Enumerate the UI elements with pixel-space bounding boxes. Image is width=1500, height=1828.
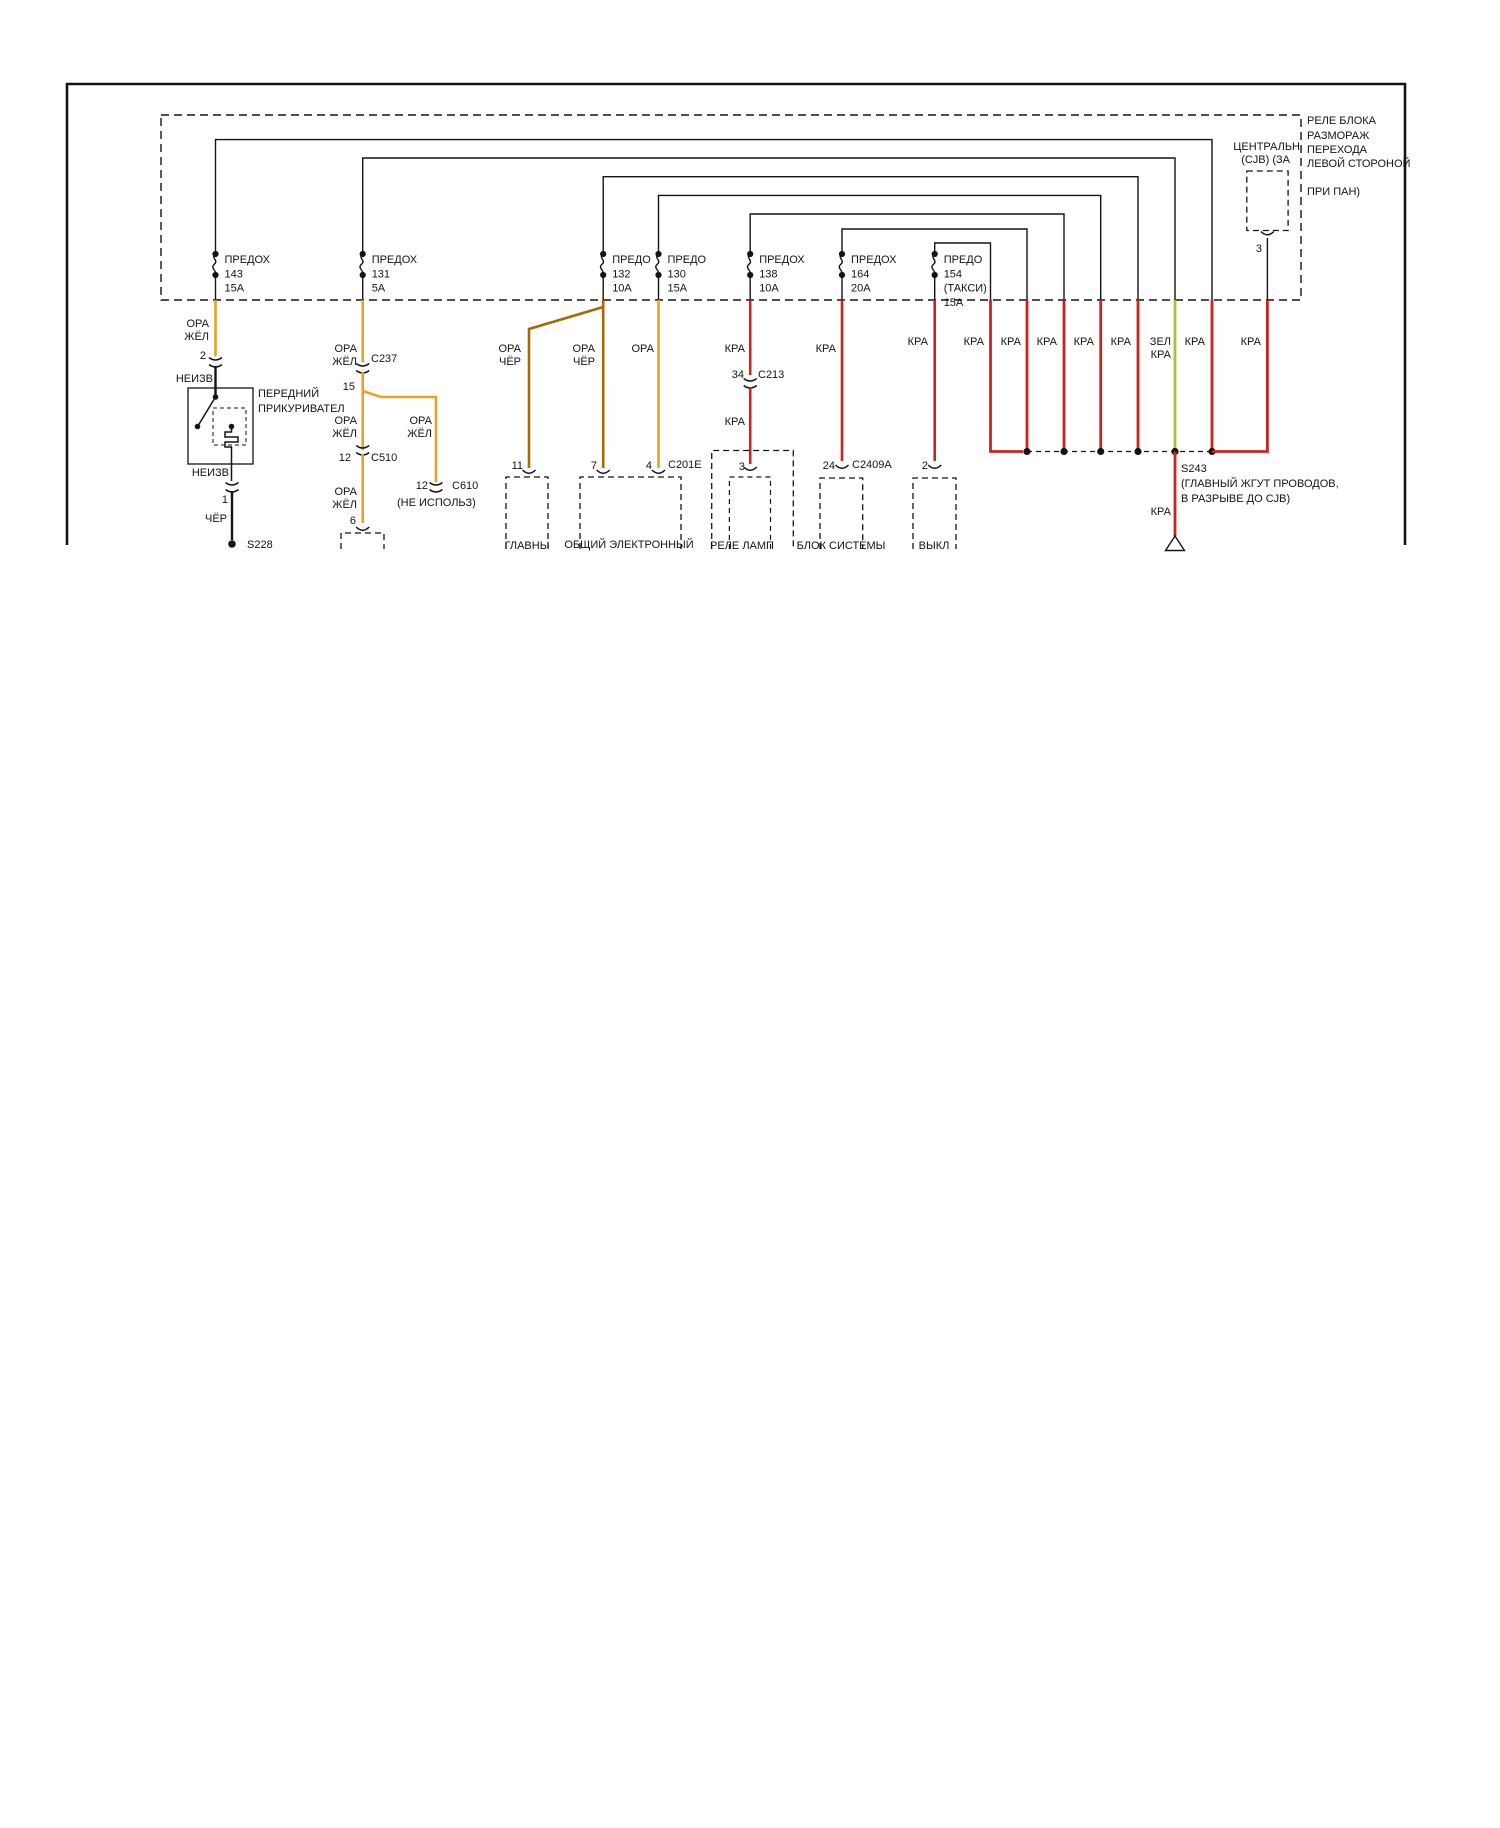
svg-text:ПРЕДО: ПРЕДО xyxy=(612,254,651,266)
svg-text:2: 2 xyxy=(922,460,928,472)
svg-text:(CJB) (ЗА: (CJB) (ЗА xyxy=(1241,154,1290,166)
svg-text:10А: 10А xyxy=(612,283,632,295)
svg-text:12: 12 xyxy=(339,452,351,464)
svg-text:ЖЁЛ: ЖЁЛ xyxy=(332,356,357,368)
svg-text:ПЕРЕДНИЙ: ПЕРЕДНИЙ xyxy=(258,387,319,400)
svg-text:НЕИЗВ: НЕИЗВ xyxy=(176,373,213,385)
svg-text:КРА: КРА xyxy=(908,336,929,348)
svg-text:3: 3 xyxy=(1256,243,1262,255)
svg-text:5А: 5А xyxy=(372,283,386,295)
svg-text:ЦЕНТРАЛЬН: ЦЕНТРАЛЬН xyxy=(1233,141,1300,153)
svg-text:S228: S228 xyxy=(247,539,273,551)
svg-text:КРА: КРА xyxy=(964,336,985,348)
svg-text:РЕЛЕ ЛАМП: РЕЛЕ ЛАМП xyxy=(710,540,774,552)
svg-text:ОРА: ОРА xyxy=(632,343,655,355)
svg-text:(ГЛАВНЫЙ ЖГУТ ПРОВОДОВ,: (ГЛАВНЫЙ ЖГУТ ПРОВОДОВ, xyxy=(1181,477,1339,490)
svg-text:154: 154 xyxy=(944,268,962,280)
svg-text:1: 1 xyxy=(222,494,228,506)
svg-text:132: 132 xyxy=(612,268,630,280)
svg-text:C2409A: C2409A xyxy=(852,459,892,471)
svg-text:4: 4 xyxy=(646,460,652,472)
svg-text:РАЗМОРАЖ: РАЗМОРАЖ xyxy=(1307,130,1369,142)
svg-text:6: 6 xyxy=(350,515,356,527)
svg-text:ПЕРЕХОДА: ПЕРЕХОДА xyxy=(1307,144,1368,156)
svg-text:130: 130 xyxy=(668,268,686,280)
svg-text:В РАЗРЫВЕ ДО CJB): В РАЗРЫВЕ ДО CJB) xyxy=(1181,493,1290,505)
svg-text:24: 24 xyxy=(823,460,835,472)
svg-text:2: 2 xyxy=(200,350,206,362)
svg-text:S243: S243 xyxy=(1181,463,1207,475)
svg-text:КРА: КРА xyxy=(1151,506,1172,518)
svg-text:10А: 10А xyxy=(759,283,779,295)
svg-text:РЕЛЕ БЛОКА: РЕЛЕ БЛОКА xyxy=(1307,115,1377,127)
svg-text:C201E: C201E xyxy=(668,459,702,471)
svg-text:БЛОК СИСТЕМЫ: БЛОК СИСТЕМЫ xyxy=(797,540,886,552)
svg-text:C610: C610 xyxy=(452,480,478,492)
svg-text:12: 12 xyxy=(416,480,428,492)
svg-text:ОРА: ОРА xyxy=(573,343,596,355)
svg-text:ПРИ ПАН): ПРИ ПАН) xyxy=(1307,186,1360,198)
svg-text:ОРА: ОРА xyxy=(335,343,358,355)
svg-text:ПРЕДО: ПРЕДО xyxy=(668,254,707,266)
svg-text:15А: 15А xyxy=(225,283,245,295)
svg-text:ЗЕЛ: ЗЕЛ xyxy=(1150,336,1171,348)
svg-text:КРА: КРА xyxy=(816,343,837,355)
svg-text:КРА: КРА xyxy=(1111,336,1132,348)
svg-text:131: 131 xyxy=(372,268,390,280)
svg-text:КРА: КРА xyxy=(1151,349,1172,361)
svg-text:ЧЁР: ЧЁР xyxy=(573,356,595,368)
svg-text:ЛЕВОЙ СТОРОНОЙ: ЛЕВОЙ СТОРОНОЙ xyxy=(1307,157,1410,170)
svg-text:(ТАКСИ): (ТАКСИ) xyxy=(944,283,987,295)
svg-text:ПРЕДОХ: ПРЕДОХ xyxy=(372,254,418,266)
svg-text:15: 15 xyxy=(343,381,355,393)
svg-text:ЖЁЛ: ЖЁЛ xyxy=(184,331,209,343)
svg-text:ОРА: ОРА xyxy=(499,343,522,355)
svg-text:164: 164 xyxy=(851,268,869,280)
svg-text:C213: C213 xyxy=(758,369,784,381)
svg-text:ОРА: ОРА xyxy=(187,318,210,330)
svg-text:КРА: КРА xyxy=(1001,336,1022,348)
svg-text:ЖЁЛ: ЖЁЛ xyxy=(407,428,432,440)
svg-text:ВЫКЛ: ВЫКЛ xyxy=(919,540,950,552)
svg-text:ОРА: ОРА xyxy=(335,415,358,427)
svg-text:ПРИКУРИВАТЕЛ: ПРИКУРИВАТЕЛ xyxy=(258,403,345,415)
svg-text:КРА: КРА xyxy=(1241,336,1262,348)
svg-text:15А: 15А xyxy=(668,283,688,295)
svg-text:КРА: КРА xyxy=(725,416,746,428)
svg-text:ЧЁР: ЧЁР xyxy=(205,513,227,525)
svg-text:138: 138 xyxy=(759,268,777,280)
svg-text:143: 143 xyxy=(225,268,243,280)
svg-text:КРА: КРА xyxy=(1037,336,1058,348)
svg-text:КРА: КРА xyxy=(725,343,746,355)
svg-text:ПРЕДОХ: ПРЕДОХ xyxy=(759,254,805,266)
svg-text:7: 7 xyxy=(591,460,597,472)
svg-text:34: 34 xyxy=(732,369,744,381)
svg-text:ЧЁР: ЧЁР xyxy=(499,356,521,368)
svg-text:11: 11 xyxy=(512,460,523,472)
svg-text:ЖЁЛ: ЖЁЛ xyxy=(332,428,357,440)
svg-text:ОРА: ОРА xyxy=(335,486,358,498)
svg-text:15А: 15А xyxy=(944,297,964,309)
svg-text:ГЛАВНЫ: ГЛАВНЫ xyxy=(505,540,550,552)
svg-text:(НЕ ИСПОЛЬЗ): (НЕ ИСПОЛЬЗ) xyxy=(397,497,476,509)
svg-text:20А: 20А xyxy=(851,283,871,295)
svg-text:НЕИЗВ: НЕИЗВ xyxy=(192,467,229,479)
svg-text:ОБЩИЙ ЭЛЕКТРОННЫЙ: ОБЩИЙ ЭЛЕКТРОННЫЙ xyxy=(564,538,693,551)
svg-text:ЖЁЛ: ЖЁЛ xyxy=(332,499,357,511)
svg-text:C510: C510 xyxy=(371,452,397,464)
svg-text:ОРА: ОРА xyxy=(410,415,433,427)
svg-text:ПРЕДОХ: ПРЕДОХ xyxy=(851,254,897,266)
svg-text:ПРЕДОХ: ПРЕДОХ xyxy=(225,254,271,266)
svg-text:C237: C237 xyxy=(371,353,397,365)
svg-text:ПРЕДО: ПРЕДО xyxy=(944,254,983,266)
svg-text:КРА: КРА xyxy=(1074,336,1095,348)
svg-text:КРА: КРА xyxy=(1185,336,1206,348)
